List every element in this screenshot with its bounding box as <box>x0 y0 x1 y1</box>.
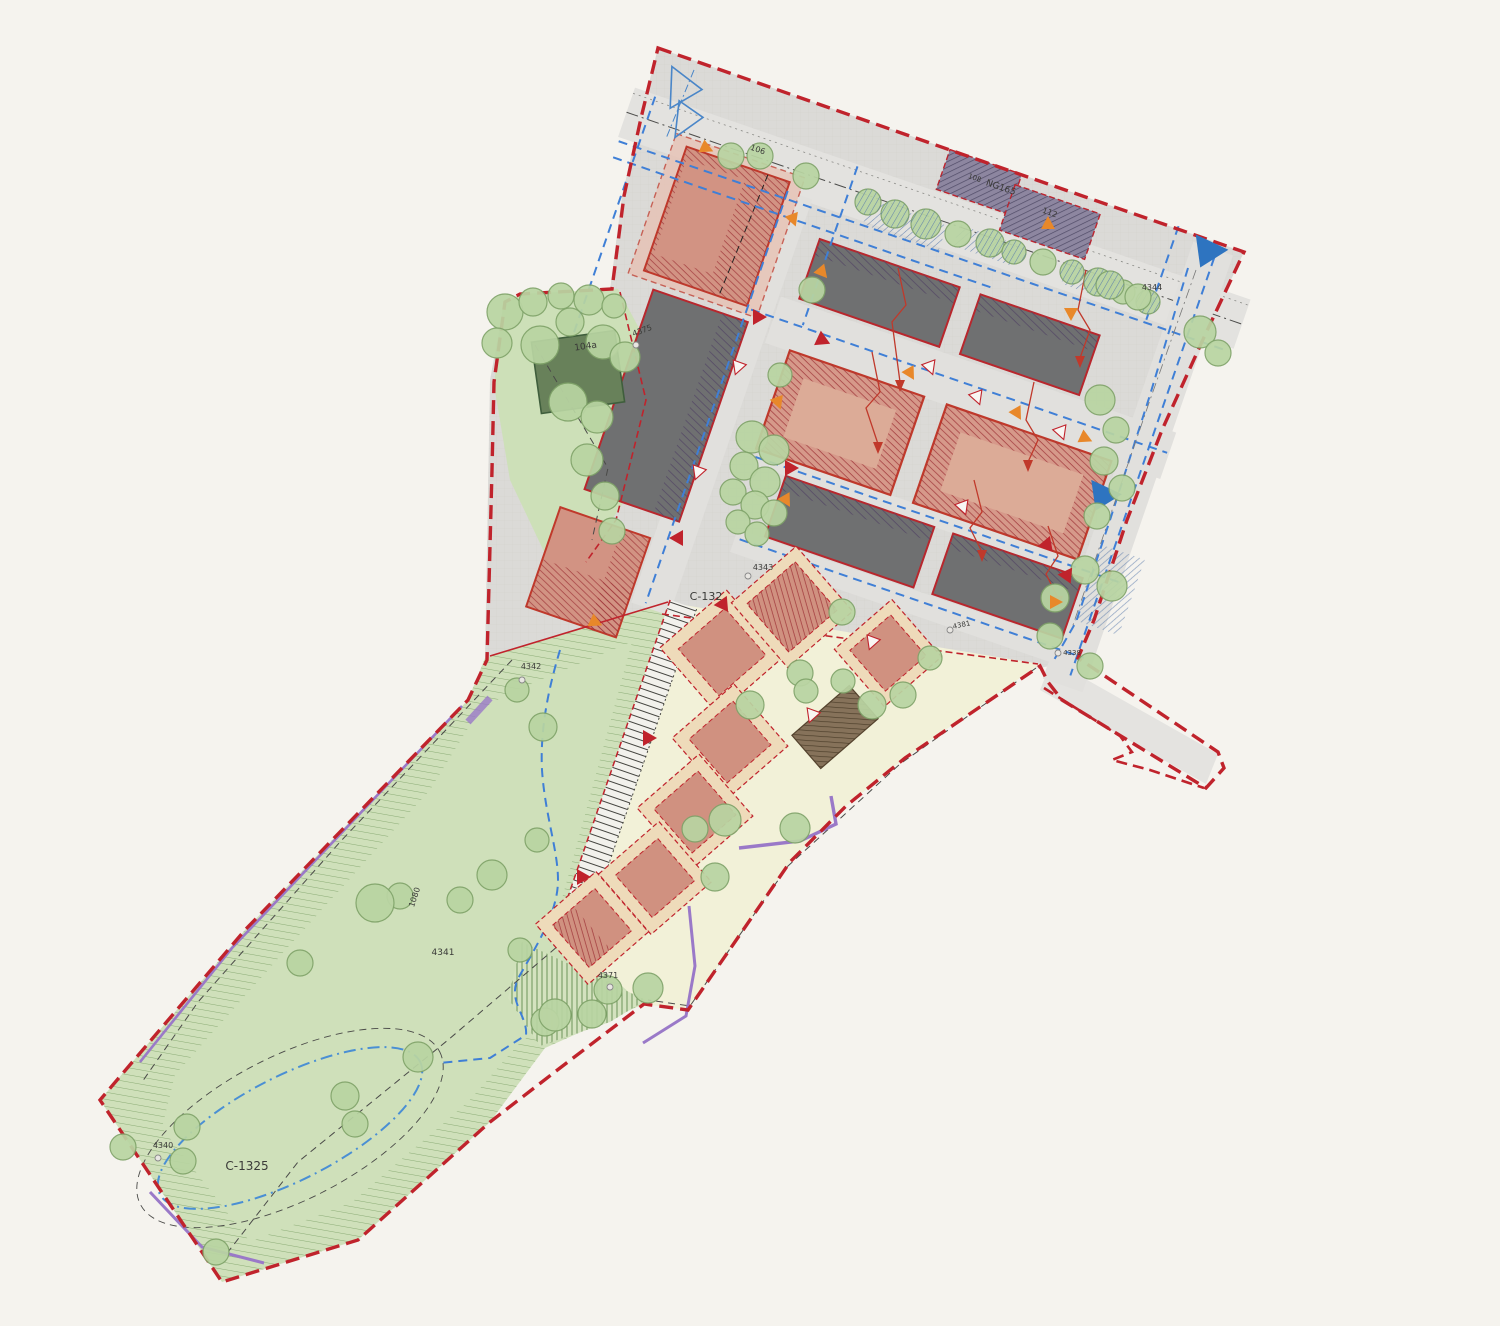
tree-icon <box>342 1111 368 1137</box>
tree-icon <box>831 669 855 693</box>
tree-icon <box>945 221 971 247</box>
site-plan-drawing: 106NG16510811243444375104a4343C-13243814… <box>0 0 1500 1326</box>
tree-icon <box>174 1114 200 1140</box>
tree-icon <box>578 1000 606 1028</box>
tree-icon <box>447 887 473 913</box>
tree-icon <box>759 435 789 465</box>
tree-icon <box>1109 475 1135 501</box>
survey-point-icon <box>607 984 613 990</box>
tree-icon <box>529 713 557 741</box>
tree-icon <box>918 646 942 670</box>
tree-icon <box>1205 340 1231 366</box>
label-parcel-4338: 4338 <box>1063 649 1081 657</box>
tree-icon <box>701 863 729 891</box>
tree-icon <box>508 938 532 962</box>
label-parcel-4340: 4340 <box>153 1141 173 1150</box>
tree-icon <box>594 976 622 1004</box>
label-parcel-4344: 4344 <box>1142 283 1162 292</box>
tree-icon <box>403 1042 433 1072</box>
tree-icon <box>682 816 708 842</box>
tree-icon <box>1103 417 1129 443</box>
label-parcel-4341: 4341 <box>432 948 455 958</box>
tree-icon <box>858 691 886 719</box>
tree-icon <box>477 860 507 890</box>
tree-icon <box>525 828 549 852</box>
tree-icon <box>1030 249 1056 275</box>
tree-icon <box>170 1148 196 1174</box>
tree-icon <box>581 401 613 433</box>
survey-point-icon <box>155 1155 161 1161</box>
tree-existing-hatch <box>881 200 909 228</box>
tree-icon <box>768 363 792 387</box>
tree-icon <box>793 163 819 189</box>
survey-point-icon <box>519 677 525 683</box>
tree-icon <box>482 328 512 358</box>
survey-point-icon <box>633 342 639 348</box>
tree-icon <box>599 518 625 544</box>
tree-icon <box>736 691 764 719</box>
tree-icon <box>356 884 394 922</box>
tree-icon <box>829 599 855 625</box>
label-parcel-4371: 4371 <box>598 971 618 980</box>
tree-icon <box>761 500 787 526</box>
tree-icon <box>521 326 559 364</box>
tree-icon <box>519 288 547 316</box>
tree-icon <box>548 283 574 309</box>
tree-icon <box>1037 623 1063 649</box>
tree-icon <box>556 308 584 336</box>
tree-icon <box>1085 385 1115 415</box>
tree-icon <box>1097 571 1127 601</box>
tree-icon <box>487 294 523 330</box>
label-zone-c132: C-132 <box>690 590 723 603</box>
tree-icon <box>890 682 916 708</box>
tree-icon <box>602 294 626 318</box>
tree-icon <box>745 522 769 546</box>
tree-icon <box>539 999 571 1031</box>
tree-existing-hatch <box>911 209 941 239</box>
tree-icon <box>794 679 818 703</box>
label-parcel-4343: 4343 <box>753 563 773 572</box>
tree-icon <box>287 950 313 976</box>
tree-icon <box>1071 556 1099 584</box>
tree-icon <box>718 143 744 169</box>
survey-point-icon <box>745 573 751 579</box>
survey-point-icon <box>1055 650 1061 656</box>
tree-icon <box>571 444 603 476</box>
tree-icon <box>1084 503 1110 529</box>
tree-icon <box>780 813 810 843</box>
tree-existing-hatch <box>855 189 881 215</box>
tree-existing-hatch <box>1096 271 1124 299</box>
label-parcel-4342: 4342 <box>521 662 541 671</box>
label-zone-c1325: C-1325 <box>225 1159 268 1173</box>
tree-existing-hatch <box>1060 260 1084 284</box>
tree-existing-hatch <box>976 229 1004 257</box>
tree-icon <box>505 678 529 702</box>
tree-icon <box>591 482 619 510</box>
tree-icon <box>110 1134 136 1160</box>
site-plan-stage: 106NG16510811243444375104a4343C-13243814… <box>0 0 1500 1326</box>
tree-icon <box>331 1082 359 1110</box>
tree-icon <box>709 804 741 836</box>
tree-icon <box>633 973 663 1003</box>
tree-icon <box>1090 447 1118 475</box>
tree-existing-hatch <box>1002 240 1026 264</box>
tree-icon <box>799 277 825 303</box>
tree-icon <box>203 1239 229 1265</box>
